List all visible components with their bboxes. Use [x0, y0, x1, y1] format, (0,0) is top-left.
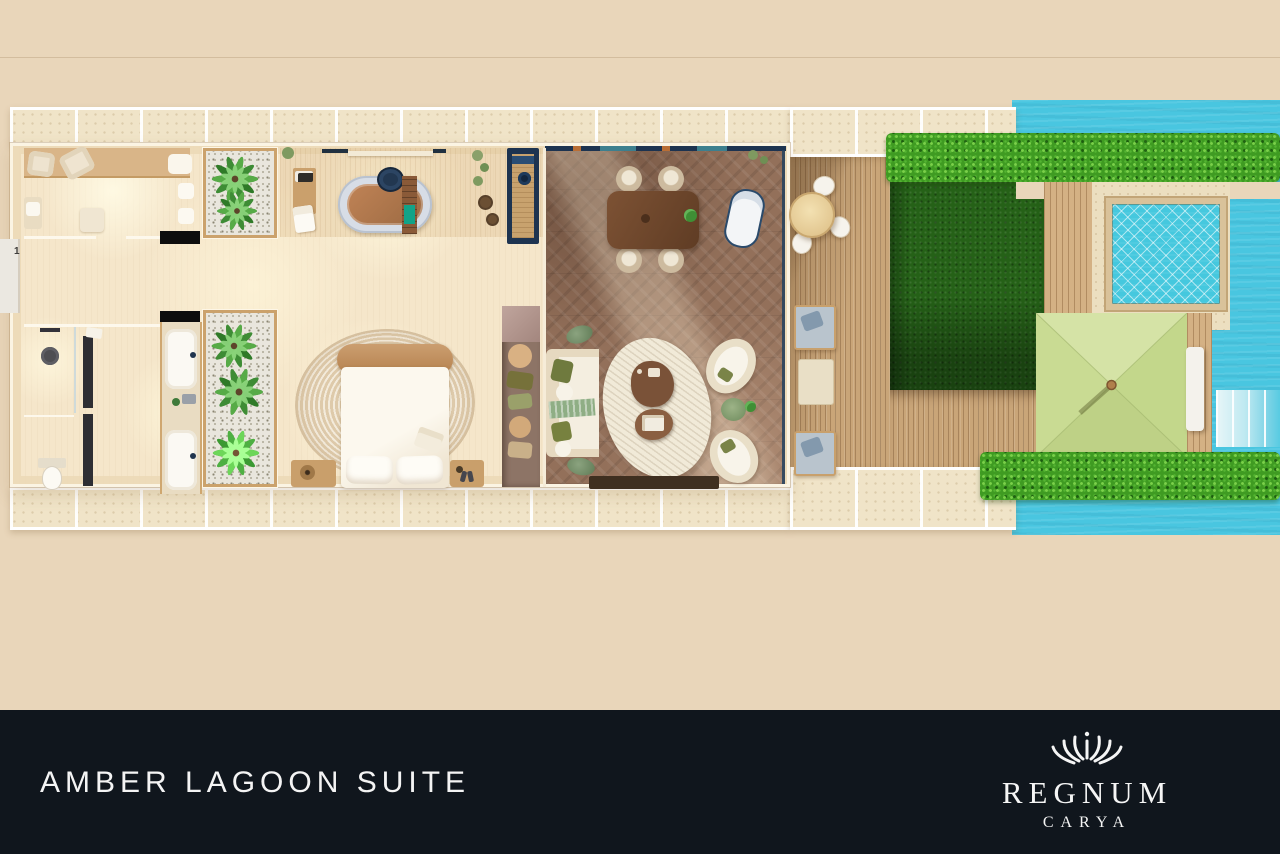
deck-lounger [794, 305, 836, 350]
paving-top-plan [10, 107, 790, 145]
vanity-sink [165, 329, 197, 389]
table-knot [641, 214, 650, 223]
faucet [190, 453, 196, 459]
shower-glass [74, 327, 76, 413]
banquette-marble-console [502, 306, 540, 342]
banquette-pillow [508, 344, 532, 368]
sofa-pillow-white [555, 441, 571, 457]
brand-name: REGNUM [982, 775, 1192, 811]
door-frame-accent [573, 146, 581, 151]
candle [637, 369, 642, 374]
vanity-tray [295, 171, 313, 182]
hedge-top [886, 133, 1280, 182]
table-lamp [300, 465, 315, 480]
window-segment [697, 146, 727, 151]
table-plant [684, 209, 697, 222]
banquette-pillow [506, 370, 534, 390]
background-seam [0, 57, 1280, 58]
dressing-stool [178, 183, 194, 199]
deck-table [789, 192, 835, 238]
dressing-wall [24, 236, 96, 239]
plunge-pool [1106, 198, 1226, 310]
wardrobe-panel [83, 414, 93, 486]
amber-lagoon-suite-floorplan: 1 AMBER LAGOON SUITE [0, 0, 1280, 854]
sofa-pillow-white [556, 384, 573, 401]
potted-plant [745, 401, 756, 412]
plant-sprig [282, 147, 294, 159]
dressing-table [80, 208, 104, 232]
bed-pillow [396, 455, 444, 485]
dressing-wall [126, 236, 160, 239]
coffee-table-book [642, 415, 664, 431]
towel-basket [377, 167, 404, 192]
shower-room-wall [24, 324, 160, 327]
bath-stool [486, 213, 499, 226]
kitchenette-counter [512, 154, 534, 238]
palm-plant [212, 186, 262, 236]
sofa-pillow-green [550, 420, 572, 442]
linen-shelf [85, 327, 102, 339]
amenity-tray [182, 394, 196, 404]
window-segment [600, 146, 636, 151]
palm-plant [207, 424, 265, 482]
bath-wall-navy [433, 149, 446, 153]
dining-chair [616, 247, 642, 273]
vine-plant [760, 156, 768, 164]
bed-pillow [346, 456, 393, 485]
brand-logo: REGNUM CARYA [982, 728, 1192, 832]
dressing-cushion [168, 154, 192, 174]
vanity-sink [165, 430, 197, 490]
sofa-throw [548, 398, 595, 418]
glass-wall [782, 150, 785, 484]
plant-sprig [480, 163, 489, 172]
crown-icon [1039, 728, 1135, 768]
footer: AMBER LAGOON SUITE REGNUM CARYA [0, 710, 1280, 854]
plant-sprig [473, 176, 483, 186]
banquette-pillow [507, 441, 532, 459]
bath-wall-shelf [348, 151, 433, 156]
banquette-pillow [507, 393, 532, 410]
bath-stool [478, 195, 493, 210]
amenity-plant [172, 398, 180, 406]
pool-steps [1216, 390, 1280, 447]
pool-side-slats [1044, 182, 1092, 313]
lounger-pillow [800, 310, 824, 332]
dressing-stool [178, 208, 194, 224]
kitchenette-unit [507, 148, 539, 244]
wall-closet-black [160, 231, 200, 244]
toilet-bowl [42, 466, 62, 490]
sun-lounger-white [1186, 347, 1204, 431]
kitchenette-panel [512, 156, 534, 164]
pergola-canopy [1036, 313, 1187, 457]
side-table [721, 398, 746, 421]
shower-niche [40, 328, 60, 332]
lounger-pillow [800, 436, 824, 458]
plant-sprig [472, 150, 483, 161]
suite-title: AMBER LAGOON SUITE [40, 766, 470, 800]
coffee-table-tray [648, 368, 660, 377]
wc-partition-wall [24, 415, 74, 417]
dining-chair [658, 247, 684, 273]
caddy-towel [404, 205, 415, 224]
entry-number: 1 [14, 246, 20, 257]
door-frame-accent [662, 146, 670, 151]
bath-wall-navy [322, 149, 348, 153]
banquette-pillow [509, 416, 531, 438]
dining-chair [616, 166, 642, 192]
dressing-armchair [26, 150, 55, 177]
wardrobe-panel [83, 336, 93, 408]
deck-lounger [794, 431, 836, 476]
dining-chair [658, 166, 684, 192]
palm-plant [209, 362, 269, 422]
brand-sub: CARYA [982, 814, 1192, 832]
folded-towels [292, 205, 315, 234]
tv-console [589, 476, 719, 489]
rain-shower-head [41, 347, 59, 365]
vine-plant [748, 150, 758, 160]
pool-steps-lines [1216, 390, 1280, 447]
deck-side-table [798, 359, 834, 405]
hedge-bottom [980, 452, 1280, 500]
dressing-bench-pillow [26, 202, 40, 216]
armchair-cushion [711, 431, 757, 482]
paving-bottom-plan [10, 487, 790, 530]
kitchenette-sink [518, 172, 531, 185]
faucet [190, 352, 196, 358]
